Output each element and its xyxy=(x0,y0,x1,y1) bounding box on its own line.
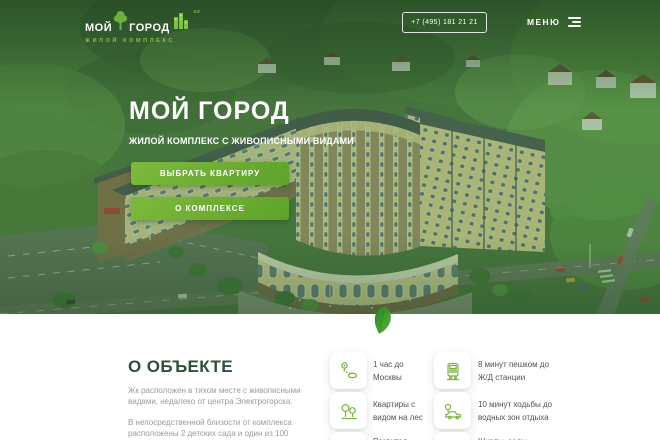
hero-subtitle: ЖИЛОЙ КОМПЛЕКС С ЖИВОПИСНЫМИ ВИДАМИ xyxy=(129,136,354,146)
about-paragraph-1: Жк расположен в тихом месте с живописным… xyxy=(128,386,318,407)
feature-label: 8 минут пешком до Ж/Д станции xyxy=(478,352,558,389)
car-icon xyxy=(434,392,471,429)
hero-section: МОЙ ГОРОД xyxy=(0,0,660,314)
feature-label: 1 час до Москвы xyxy=(373,352,434,389)
features-grid: 1 час до Москвы 8 минут пешком до Ж/Д ст… xyxy=(330,352,600,440)
logo-version: 2.0 xyxy=(193,9,199,14)
feature-label: Школы, сады xyxy=(478,435,558,440)
tree-icon xyxy=(113,10,128,36)
feature-infrastructure: Развитая xyxy=(330,432,434,440)
hero-title: МОЙ ГОРОД xyxy=(129,97,290,126)
school-icon xyxy=(330,432,367,440)
feature-moscow: 1 час до Москвы xyxy=(330,352,434,392)
menu-label: МЕНЮ xyxy=(527,17,560,27)
choose-apartment-button[interactable]: ВЫБРАТЬ КВАРТИРУ xyxy=(131,162,289,185)
leaf-icon xyxy=(370,303,396,336)
feature-label: Развитая xyxy=(373,435,434,440)
hamburger-icon xyxy=(568,17,581,27)
buildings-icon: 2.0 xyxy=(174,12,189,36)
landing-page: { "header": { "logo": { "word1": "МОЙ", … xyxy=(0,0,660,440)
about-paragraph-2: В непосредственной близости от комплекса… xyxy=(128,418,318,440)
menu-button[interactable]: МЕНЮ xyxy=(527,17,581,27)
logo-word-gorod: ГОРОД xyxy=(129,23,170,36)
feature-railway: 8 минут пешком до Ж/Д станции xyxy=(434,352,600,392)
about-description: Жк расположен в тихом месте с живописным… xyxy=(128,386,318,440)
phone-button[interactable]: +7 (495) 181 21 21 xyxy=(402,12,487,33)
about-complex-button[interactable]: О КОМПЛЕКСЕ xyxy=(131,197,289,220)
feature-label: 10 минут ходьбы до водных зон отдыха xyxy=(478,392,558,429)
logo-subtitle: ЖИЛОЙ КОМПЛЕКС xyxy=(85,38,195,44)
feature-forest-view: Квартиры с видом на лес xyxy=(330,392,434,432)
train-icon xyxy=(434,352,471,389)
about-section-title: О ОБЪЕКТЕ xyxy=(128,357,233,377)
forest-icon xyxy=(330,392,367,429)
playground-icon xyxy=(434,432,471,440)
feature-label: Квартиры с видом на лес xyxy=(373,392,434,429)
logo[interactable]: МОЙ ГОРОД xyxy=(85,10,195,44)
route-icon xyxy=(330,352,367,389)
feature-schools: Школы, сады xyxy=(434,432,600,440)
hero-aerial-photo xyxy=(0,0,660,314)
feature-water-recreation: 10 минут ходьбы до водных зон отдыха xyxy=(434,392,600,432)
logo-word-moy: МОЙ xyxy=(85,23,112,36)
